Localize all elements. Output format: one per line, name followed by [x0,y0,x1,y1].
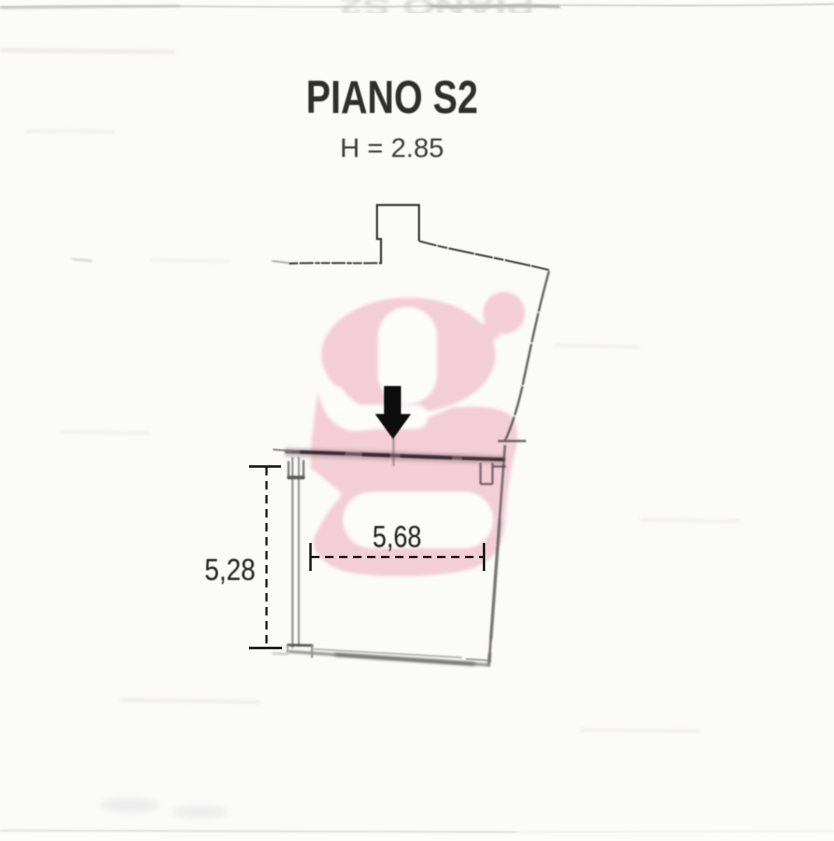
svg-text:PIANO S2: PIANO S2 [306,71,478,123]
svg-text:5,28: 5,28 [205,552,256,587]
svg-text:H = 2.85: H = 2.85 [340,133,444,163]
svg-text:5,68: 5,68 [373,519,422,554]
